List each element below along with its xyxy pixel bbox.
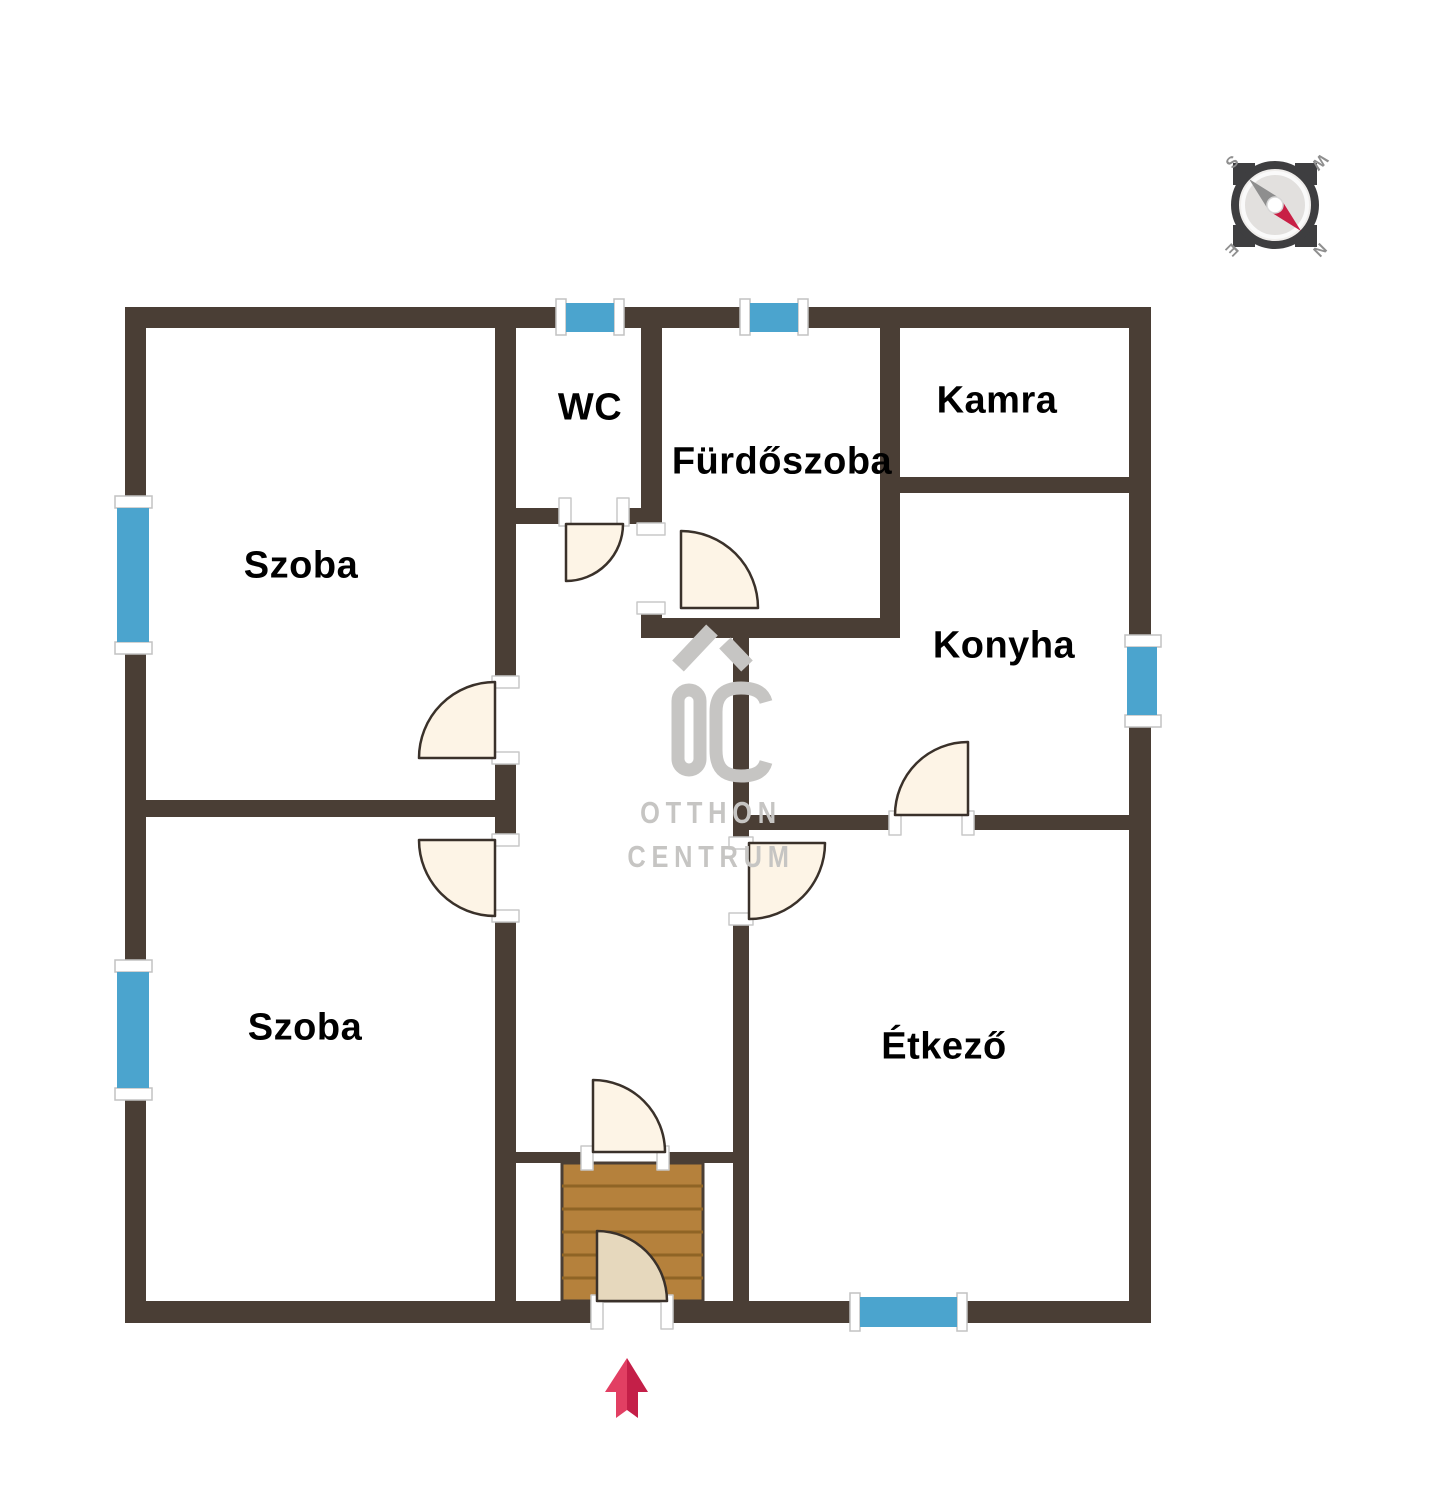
wc-bottom-wall-left — [516, 508, 565, 524]
door-szoba-top — [419, 682, 495, 758]
window-szoba-top-left — [115, 496, 152, 654]
szoba-divider-wall — [146, 800, 495, 817]
hall-left-wall-lower — [495, 916, 516, 1301]
outer-wall-bottom-left — [125, 1301, 597, 1323]
hall-threshold-wall-right — [663, 1152, 733, 1163]
door-szoba-bottom — [419, 840, 495, 916]
window-konyha-right — [1125, 635, 1161, 727]
hall-threshold-wall-left — [516, 1152, 587, 1163]
window-szoba-bottom-left — [115, 960, 152, 1100]
room-label-szoba-bottom: Szoba — [248, 1007, 362, 1050]
hall-left-wall-upper — [495, 328, 516, 682]
compass-pivot — [1267, 197, 1283, 213]
room-label-etkezo: Étkező — [881, 1026, 1006, 1069]
window-wc-top — [556, 299, 624, 335]
window-etkezo-bottom — [850, 1293, 967, 1331]
door-furdoszoba — [681, 531, 758, 608]
floorplan-drawing — [0, 0, 1440, 1500]
konyha-etkezo-wall-right — [968, 815, 1129, 830]
watermark-line2: CENTRUM — [627, 839, 794, 875]
room-label-konyha: Konyha — [933, 625, 1075, 668]
hall-right-wall-lower — [733, 919, 749, 1301]
door-wc — [566, 524, 623, 581]
watermark-logo — [678, 630, 766, 776]
door-konyha — [895, 742, 968, 815]
wc-furdo-wall — [641, 328, 662, 530]
window-furdo-top — [740, 299, 808, 335]
compass — [1233, 163, 1317, 247]
outer-wall-right — [1129, 307, 1151, 1323]
watermark-line1: OTTHON — [640, 795, 782, 831]
room-label-furdoszoba: Fürdőszoba — [672, 441, 892, 484]
kamra-bottom-wall — [880, 477, 1129, 493]
room-label-kamra: Kamra — [937, 380, 1058, 423]
outer-wall-top — [125, 307, 1151, 328]
room-label-wc: WC — [558, 387, 622, 430]
floorplan-canvas: WC Fürdőszoba Kamra Konyha Szoba Szoba É… — [0, 0, 1440, 1500]
hall-left-wall-mid — [495, 758, 516, 840]
logo-letter-o — [678, 690, 700, 770]
furdo-bottom-wall — [658, 618, 899, 638]
outer-wall-left — [125, 307, 146, 1323]
door-hall-stairs — [593, 1080, 665, 1152]
room-label-szoba-top: Szoba — [244, 545, 358, 588]
entrance-arrow — [605, 1358, 648, 1418]
